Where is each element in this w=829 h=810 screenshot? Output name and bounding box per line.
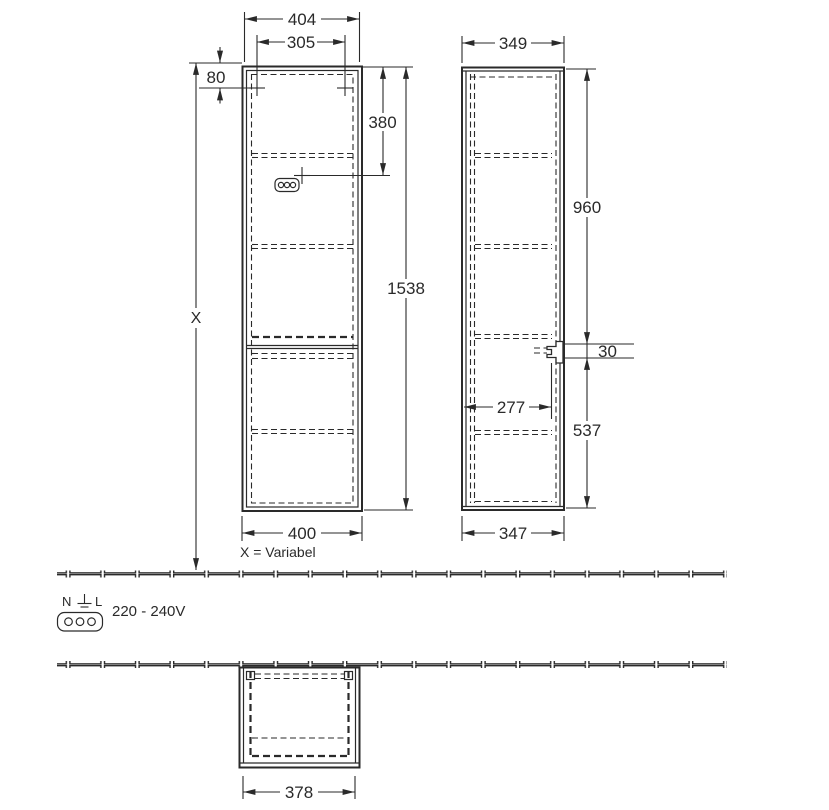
dim-label-378: 378 bbox=[285, 783, 313, 802]
dim-label-380: 380 bbox=[368, 113, 396, 132]
dim-label-537: 537 bbox=[573, 421, 601, 440]
terminal-l-label: L bbox=[95, 594, 102, 609]
cabinet-dimension-drawing: 404 305 80 380 1538 bbox=[0, 0, 829, 810]
dim-label-1538: 1538 bbox=[387, 279, 425, 298]
drawing-background bbox=[0, 0, 829, 810]
dim-label-305: 305 bbox=[287, 33, 315, 52]
terminal-n-label: N bbox=[62, 594, 71, 609]
height-variable-note: X = Variabel bbox=[240, 544, 316, 560]
voltage-label: 220 - 240V bbox=[112, 603, 185, 620]
technical-drawing-page: 404 305 80 380 1538 bbox=[0, 0, 829, 810]
dim-label-80: 80 bbox=[207, 68, 226, 87]
dim-label-349: 349 bbox=[499, 34, 527, 53]
dim-label-277: 277 bbox=[497, 398, 525, 417]
dim-label-x: X bbox=[191, 310, 202, 327]
dim-label-960: 960 bbox=[573, 198, 601, 217]
dim-label-30: 30 bbox=[598, 342, 617, 361]
dim-label-400: 400 bbox=[288, 524, 316, 543]
dim-label-404: 404 bbox=[288, 10, 316, 29]
dim-label-347: 347 bbox=[499, 524, 527, 543]
wall-hatch-line-lower bbox=[57, 661, 727, 668]
wall-hatch-line-upper bbox=[57, 571, 727, 578]
